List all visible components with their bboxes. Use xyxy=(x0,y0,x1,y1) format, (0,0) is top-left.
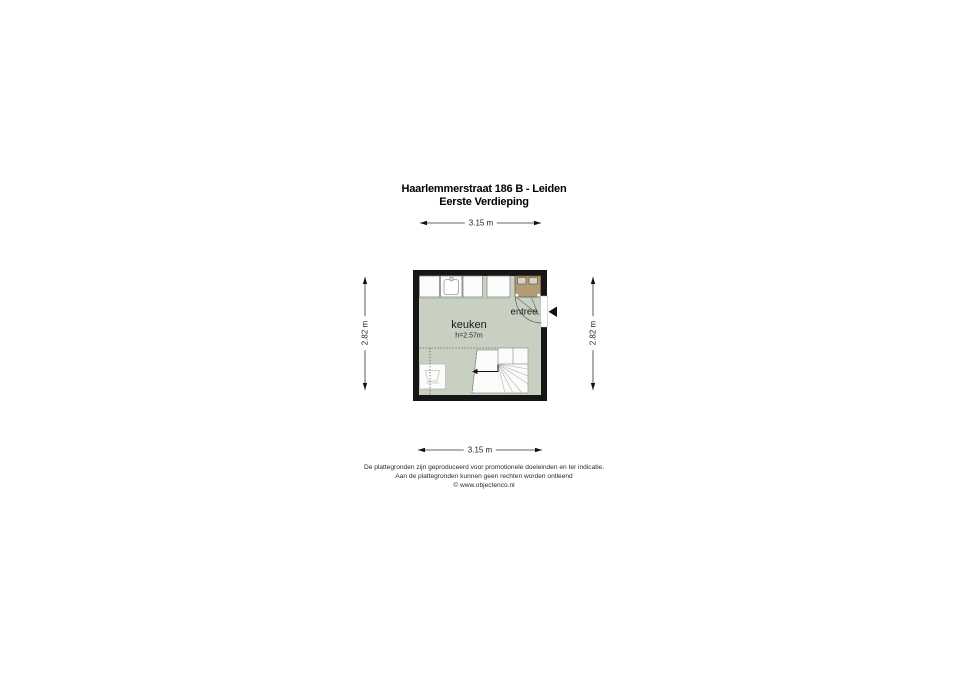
door-opening xyxy=(541,296,548,327)
entree-label: entree xyxy=(511,307,538,318)
kitchen-counter xyxy=(420,276,511,297)
copyright-line: © www.objectenco.nl xyxy=(364,482,604,491)
disclaimer-line: De plattegronden zijn geproduceerd voor … xyxy=(364,464,604,473)
dimension-label-right: 2.82 m xyxy=(589,316,598,350)
disclaimer-line: Aan de plattegronden kunnen geen rechten… xyxy=(364,473,604,482)
arrowhead-icon xyxy=(591,383,595,390)
cabinet-post xyxy=(537,294,540,297)
cabinet-fixture-icon xyxy=(518,278,527,285)
counter-unit xyxy=(487,276,510,297)
floorplan-drawing xyxy=(350,215,620,460)
counter-unit xyxy=(463,276,483,297)
ceiling-height-label: h=2.57m xyxy=(455,333,482,340)
arrowhead-icon xyxy=(420,221,427,225)
arrowhead-icon xyxy=(534,221,541,225)
dimension-label-bottom: 3.15 m xyxy=(464,446,496,455)
stairs xyxy=(472,348,528,393)
arrowhead-icon xyxy=(535,448,542,452)
cabinet-fixture-icon xyxy=(529,278,538,285)
stairs-outline xyxy=(472,348,528,393)
cabinet-post xyxy=(515,294,518,297)
dimension-label-top: 3.15 m xyxy=(465,219,497,228)
counter-unit xyxy=(420,276,440,297)
dimension-label-left: 2.82 m xyxy=(361,316,370,350)
page-title: Haarlemmerstraat 186 B - Leiden xyxy=(402,183,567,196)
arrowhead-icon xyxy=(363,383,367,390)
disclaimer: De plattegronden zijn geproduceerd voor … xyxy=(364,464,604,490)
furniture-box xyxy=(420,364,446,389)
page-subtitle: Eerste Verdieping xyxy=(402,196,567,209)
faucet-icon xyxy=(450,277,453,281)
title-block: Haarlemmerstraat 186 B - Leiden Eerste V… xyxy=(402,183,567,208)
sink-icon xyxy=(444,280,459,295)
keuken-label: keuken xyxy=(451,319,486,331)
arrowhead-icon xyxy=(591,277,595,284)
arrowhead-icon xyxy=(418,448,425,452)
arrowhead-icon xyxy=(363,277,367,284)
floorplan-page: Haarlemmerstraat 186 B - Leiden Eerste V… xyxy=(0,0,960,679)
entrance-arrow-icon xyxy=(549,307,558,318)
